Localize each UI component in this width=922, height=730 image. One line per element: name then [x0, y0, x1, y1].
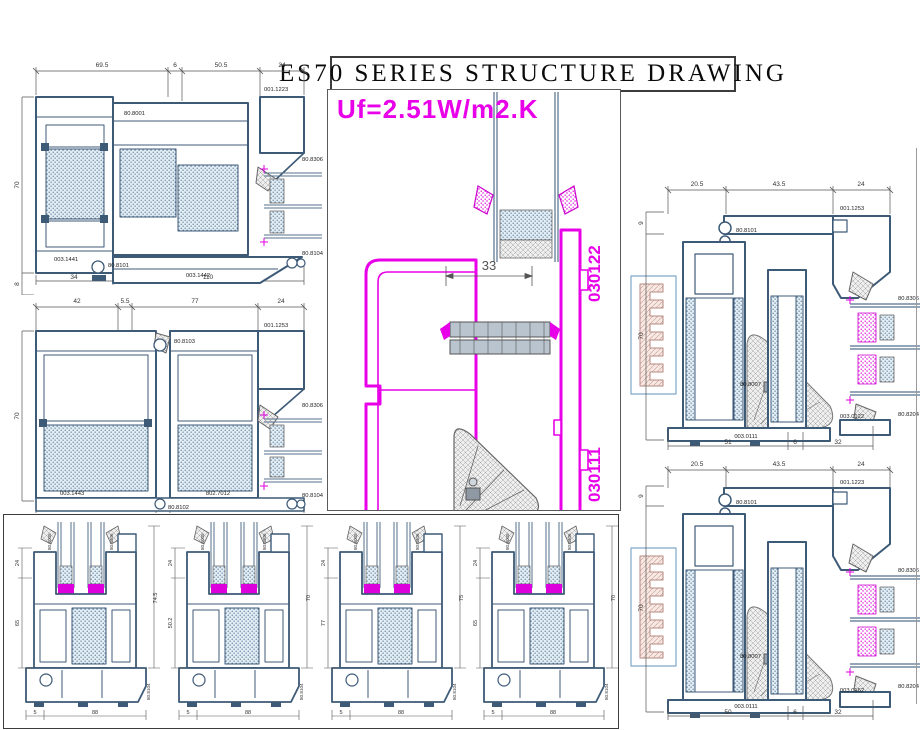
- part-label: 80.8306: [262, 533, 267, 550]
- sill-profile: [332, 522, 452, 707]
- part-label: 003.0162: [840, 688, 864, 694]
- part-label: 003.0111: [734, 704, 757, 710]
- dim-bottom-1: 5: [33, 710, 36, 716]
- part-label: 003.0122: [840, 414, 864, 420]
- part-label: 003.0111: [734, 434, 757, 440]
- part-label: 80.8306: [109, 533, 114, 550]
- dim-side-top: 24: [168, 560, 174, 566]
- section-right-top: 20.5 43.5 24 9 70 51 6 32 001.1253 80.81…: [628, 176, 920, 458]
- jamb-profile: [631, 488, 920, 718]
- profile-geometry: [36, 97, 322, 283]
- thermal-break-hatch: [178, 425, 252, 491]
- dim-bottom-3: 32: [834, 439, 842, 446]
- arc-hardware: [454, 429, 538, 510]
- part-label: 80.8306: [567, 533, 572, 550]
- dim-side-far: 70: [306, 595, 312, 601]
- part-label: 80.8005: [353, 533, 358, 550]
- part-label: 80.8306: [415, 533, 420, 550]
- dim-side-mid: 50.2: [168, 618, 174, 629]
- dim-top-1: 69.5: [96, 62, 109, 69]
- part-label: 802.7012: [206, 491, 230, 497]
- part-label: 80.8007: [740, 382, 761, 388]
- section-top-left-jamb: 69.5 6 50.5 24 70 8 34 110 80.8001 001.1…: [8, 55, 326, 295]
- sill-section-3: 24 77 75 80.8005 80.8306 80.8104 5 88: [320, 518, 468, 725]
- dim-top-1: 20.5: [691, 181, 704, 188]
- dim-top-3: 50.5: [215, 62, 228, 69]
- part-label: 80.8005: [505, 533, 510, 550]
- dim-top-1: 20.5: [691, 461, 704, 468]
- dim-side-far: 70: [611, 595, 617, 601]
- dim-left: 70: [638, 332, 645, 340]
- sill-section-1: 24 65 74.5 80.8005 80.8306 80.8104 5 88: [14, 518, 162, 725]
- dim-top-2: 43.5: [773, 181, 786, 188]
- part-label: 001.1223: [840, 480, 864, 486]
- dim-top-2: 6: [173, 62, 177, 69]
- dim-top-3: 24: [857, 461, 865, 468]
- dim-side-far: 75: [459, 595, 465, 601]
- part-label: 80.8001: [124, 111, 145, 117]
- dim-left: 70: [14, 181, 21, 189]
- sill-profile: [179, 522, 299, 707]
- uf-value-label: Uf=2.51W/m2.K: [337, 94, 539, 125]
- dim-left-b: 8: [14, 282, 21, 286]
- part-label: 003.1442: [186, 273, 210, 279]
- sill-section-2: 24 50.2 70 80.8005 80.8306 80.8104 5 88: [167, 518, 315, 725]
- dim-side-mid: 65: [473, 620, 479, 626]
- part-label: 001.1253: [840, 206, 864, 212]
- thermal-break-hatch: [44, 425, 148, 491]
- dim-side-far: 74.5: [153, 593, 159, 604]
- dim-bottom-1: 34: [70, 274, 78, 281]
- part-label: 80.8101: [736, 228, 757, 234]
- dim-bottom-2: 88: [92, 710, 98, 716]
- drawing-title: ES70 SERIES STRUCTURE DRAWING: [279, 60, 787, 88]
- dim-bottom-1: 5: [491, 710, 494, 716]
- part-label: 003.1441: [54, 257, 78, 263]
- jamb-profile: [631, 216, 920, 446]
- dim-side-mid: 65: [15, 620, 21, 626]
- dim-bottom-1: 5: [339, 710, 342, 716]
- part-label: 80.8306: [302, 403, 323, 409]
- sill-section-4: 24 65 70 80.8005 80.8306 80.8104 5 88: [472, 518, 620, 725]
- profile-code-top: 030122: [585, 245, 604, 302]
- part-label: 80.8007: [740, 654, 761, 660]
- dim-side-top: 24: [473, 560, 479, 566]
- drawing-title-box: ES70 SERIES STRUCTURE DRAWING: [330, 56, 736, 92]
- part-label: 80.8306: [302, 157, 323, 163]
- dim-left-top: 9: [638, 221, 645, 225]
- part-label: 80.8104: [604, 683, 609, 700]
- central-detail-drawing: 33 030122 030111: [328, 90, 620, 510]
- section-mid-left-meeting: 42 5.5 77 24 70 82 5.5 75 80.8103 001.12…: [8, 293, 326, 513]
- dim-bottom-2: 88: [398, 710, 404, 716]
- part-label: 80.8101: [108, 263, 129, 269]
- glazing-gasket-left: [474, 186, 493, 214]
- sill-profile: [26, 522, 146, 707]
- bottom-sections-box: 24 65 74.5 80.8005 80.8306 80.8104 5 88 …: [3, 514, 619, 729]
- dim-33: 33: [482, 258, 496, 273]
- part-label: 001.1223: [264, 87, 288, 93]
- part-label: 80.8104: [146, 683, 151, 700]
- dim-top-1: 42: [73, 298, 81, 305]
- dim-left-top: 9: [638, 494, 645, 498]
- central-detail-box: Uf=2.51W/m2.K: [327, 89, 621, 511]
- profile-geometry: [36, 331, 322, 511]
- glass-spacer: [500, 210, 552, 240]
- dim-bottom-3: 32: [834, 709, 842, 716]
- part-label: 80.8102: [168, 505, 189, 511]
- part-label: 80.8103: [174, 339, 195, 345]
- glass-seal: [500, 240, 552, 258]
- dim-top-3: 24: [857, 181, 865, 188]
- part-label: 80.8104: [452, 683, 457, 700]
- dim-bottom-1: 51: [724, 439, 732, 446]
- sill-profile: [484, 522, 604, 707]
- part-label: 80.8005: [47, 533, 52, 550]
- thermal-break-hatch: [120, 149, 176, 217]
- dim-bottom-2: 88: [245, 710, 251, 716]
- part-label: 80.8005: [200, 533, 205, 550]
- dim-top-4: 24: [277, 298, 285, 305]
- dim-bottom-2: 88: [550, 710, 556, 716]
- sheet-border-line: [916, 148, 917, 704]
- dim-side-top: 24: [321, 560, 327, 566]
- part-label: 80.8101: [736, 500, 757, 506]
- dim-top-4: 24: [278, 62, 286, 69]
- section-right-bottom: 20.5 43.5 24 9 70 50 6 32 001.1223 80.81…: [628, 458, 920, 730]
- glazing-gasket-right: [559, 186, 578, 214]
- part-label: 001.1253: [264, 323, 288, 329]
- dim-bottom-2: 6: [793, 439, 797, 446]
- dim-top-2: 5.5: [120, 298, 129, 305]
- dim-side-top: 24: [15, 560, 21, 566]
- part-label: 80.8104: [299, 683, 304, 700]
- dim-top-3: 77: [191, 298, 199, 305]
- dim-bottom-1: 50: [724, 709, 732, 716]
- thermal-break-hatch: [46, 149, 104, 219]
- dim-bottom-1: 5: [186, 710, 189, 716]
- dim-left: 70: [14, 412, 21, 420]
- part-label: 80.8104: [302, 251, 324, 257]
- part-label: 003.1443: [60, 491, 84, 497]
- dim-bottom-2: 6: [793, 709, 797, 716]
- profile-code-bottom: 030111: [585, 447, 604, 502]
- dim-left: 70: [638, 604, 645, 612]
- dim-top-2: 43.5: [773, 461, 786, 468]
- part-label: 80.8104: [302, 493, 324, 499]
- structure-drawing-sheet: ES70 SERIES STRUCTURE DRAWING 69.5 6: [0, 0, 922, 730]
- thermal-break-hatch: [178, 165, 238, 231]
- dim-side-mid: 77: [321, 620, 327, 626]
